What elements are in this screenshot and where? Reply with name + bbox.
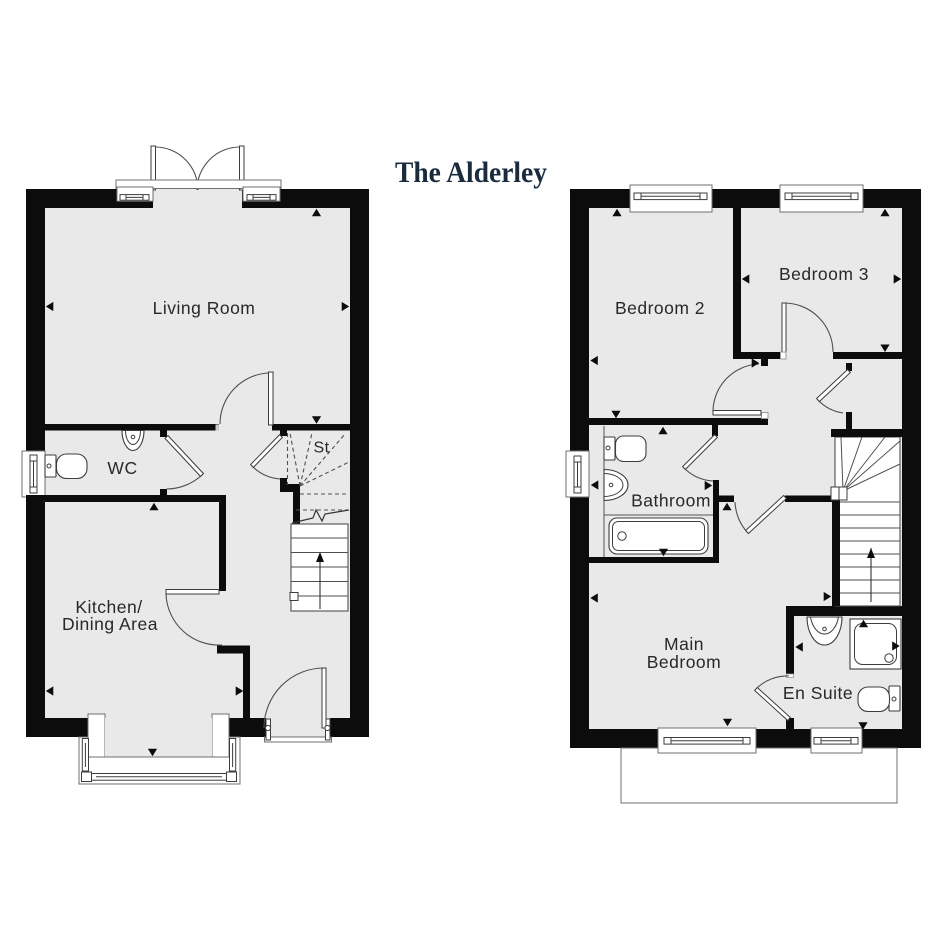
svg-text:WC: WC xyxy=(107,458,137,478)
svg-text:St: St xyxy=(313,440,329,457)
svg-text:The Alderley: The Alderley xyxy=(395,156,547,189)
svg-text:Main: Main xyxy=(664,634,704,654)
svg-text:Bedroom 3: Bedroom 3 xyxy=(779,264,869,284)
svg-text:Living Room: Living Room xyxy=(153,298,256,318)
svg-text:En Suite: En Suite xyxy=(783,683,853,703)
svg-text:Bedroom 2: Bedroom 2 xyxy=(615,298,705,318)
svg-text:Dining Area: Dining Area xyxy=(62,614,158,634)
svg-text:Bathroom: Bathroom xyxy=(631,491,711,511)
svg-text:Bedroom: Bedroom xyxy=(647,652,722,672)
